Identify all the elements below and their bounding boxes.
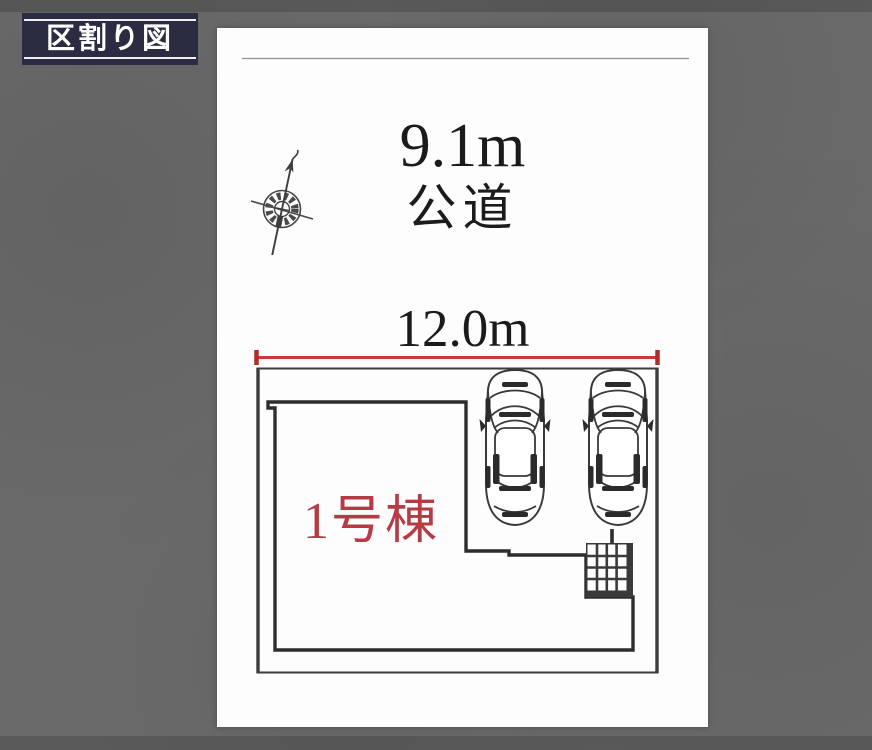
plot-plan-sheet: 9.1m 公道 12.0m 1号棟 (217, 28, 708, 727)
frontage-dimension-line (256, 350, 658, 365)
car-icon-right (583, 370, 654, 525)
building-outline (268, 402, 633, 650)
background-top-strip (0, 0, 872, 12)
site-plan-drawing (217, 28, 708, 727)
page-background: { "badge": { "label": "区割り図" }, "plan": … (0, 0, 872, 750)
north-compass-icon (251, 148, 313, 257)
storage-grid-icon (586, 529, 633, 597)
title-badge-label: 区割り図 (46, 25, 174, 54)
car-icon-left (480, 370, 551, 525)
title-badge: 区割り図 (22, 13, 198, 65)
background-bottom-strip (0, 736, 872, 750)
